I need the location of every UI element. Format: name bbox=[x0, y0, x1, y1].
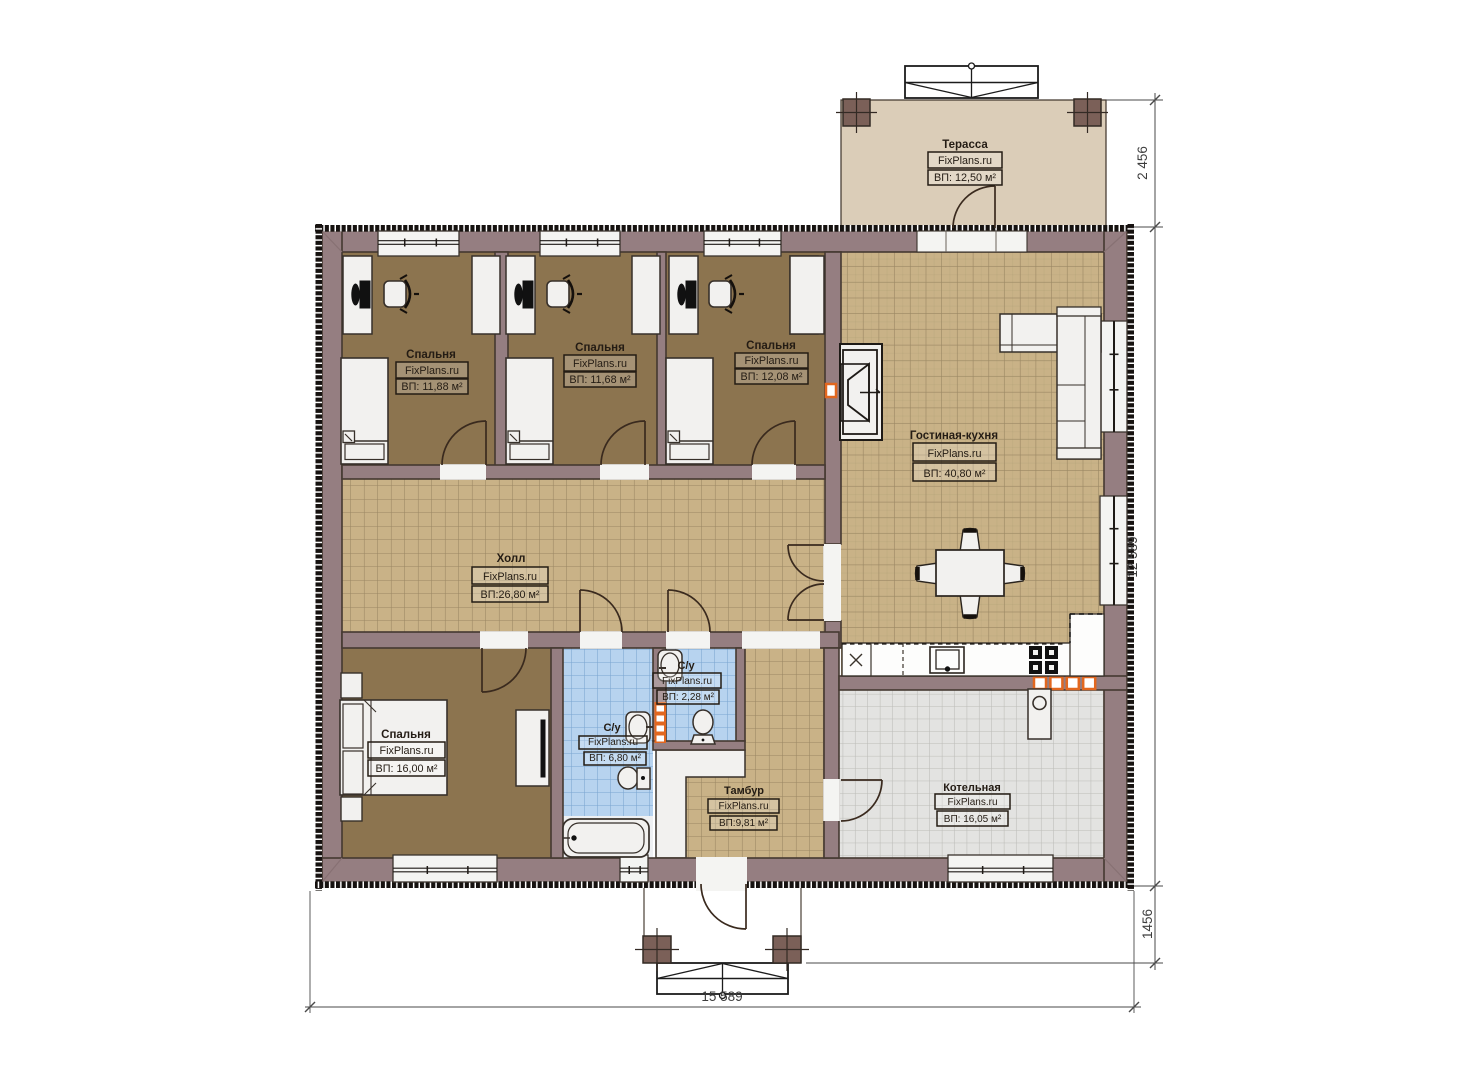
svg-text:FixPlans.ru: FixPlans.ru bbox=[405, 365, 459, 377]
svg-text:ВП:9,81 м²: ВП:9,81 м² bbox=[719, 818, 769, 829]
svg-text:FixPlans.ru: FixPlans.ru bbox=[744, 355, 798, 367]
svg-text:ВП: 2,28 м²: ВП: 2,28 м² bbox=[662, 692, 715, 703]
svg-text:FixPlans.ru: FixPlans.ru bbox=[573, 358, 627, 370]
svg-text:Спальня: Спальня bbox=[746, 340, 796, 352]
svg-text:FixPlans.ru: FixPlans.ru bbox=[927, 448, 981, 460]
svg-text:FixPlans.ru: FixPlans.ru bbox=[938, 155, 992, 167]
svg-text:1456: 1456 bbox=[1140, 909, 1155, 939]
svg-text:Холл: Холл bbox=[497, 553, 526, 565]
svg-text:FixPlans.ru: FixPlans.ru bbox=[947, 797, 997, 808]
svg-text:FixPlans.ru: FixPlans.ru bbox=[379, 745, 433, 757]
svg-text:Гостиная-кухня: Гостиная-кухня bbox=[910, 430, 998, 442]
svg-text:Спальня: Спальня bbox=[381, 729, 431, 741]
svg-text:15 589: 15 589 bbox=[701, 989, 742, 1004]
svg-text:С/у: С/у bbox=[677, 660, 695, 672]
svg-text:ВП: 16,00 м²: ВП: 16,00 м² bbox=[376, 763, 438, 775]
svg-text:ВП: 11,88 м²: ВП: 11,88 м² bbox=[401, 381, 463, 393]
svg-text:2 456: 2 456 bbox=[1135, 146, 1150, 180]
svg-text:FixPlans.ru: FixPlans.ru bbox=[588, 737, 638, 748]
svg-text:ВП: 12,08 м²: ВП: 12,08 м² bbox=[741, 371, 803, 383]
svg-text:ВП: 11,68 м²: ВП: 11,68 м² bbox=[569, 374, 631, 386]
svg-text:ВП: 6,80 м²: ВП: 6,80 м² bbox=[589, 753, 642, 764]
svg-text:FixPlans.ru: FixPlans.ru bbox=[662, 676, 712, 687]
svg-text:FixPlans.ru: FixPlans.ru bbox=[483, 571, 537, 583]
svg-text:ВП: 12,50 м²: ВП: 12,50 м² bbox=[934, 172, 996, 184]
svg-text:Спальня: Спальня bbox=[575, 342, 625, 354]
svg-text:ВП:26,80 м²: ВП:26,80 м² bbox=[481, 589, 540, 601]
svg-text:Тамбур: Тамбур bbox=[724, 785, 764, 797]
svg-text:ВП: 40,80 м²: ВП: 40,80 м² bbox=[924, 468, 986, 480]
svg-text:12 589: 12 589 bbox=[1125, 536, 1140, 577]
svg-text:С/у: С/у bbox=[603, 722, 621, 734]
svg-text:FixPlans.ru: FixPlans.ru bbox=[718, 801, 768, 812]
svg-text:Спальня: Спальня bbox=[406, 349, 456, 361]
svg-text:Терасса: Терасса bbox=[942, 139, 988, 151]
svg-text:ВП: 16,05 м²: ВП: 16,05 м² bbox=[944, 814, 1002, 825]
svg-text:Котельная: Котельная bbox=[943, 782, 1001, 794]
